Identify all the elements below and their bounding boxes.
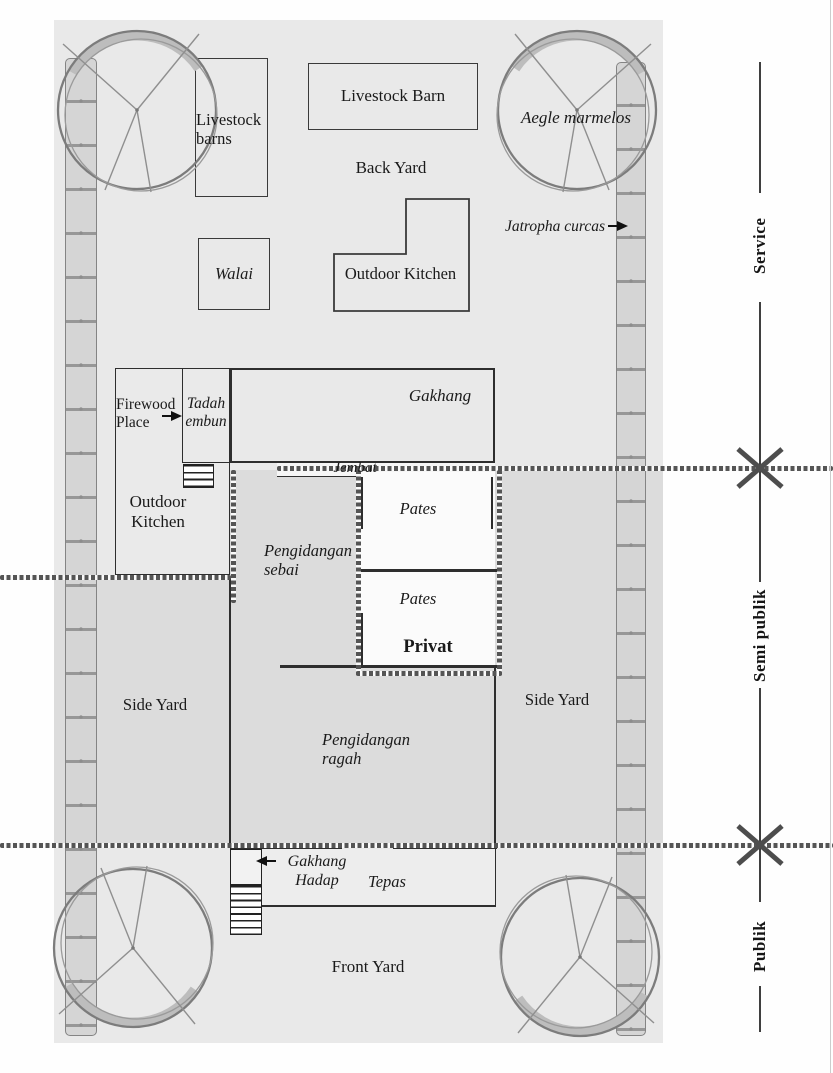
pates-divider-wall bbox=[357, 569, 497, 572]
zone-divider-x-icon bbox=[733, 822, 787, 868]
pengidangan-ragah-label: Pengidangan ragah bbox=[322, 730, 424, 769]
outdoor-kitchen-top-label: Outdoor Kitchen bbox=[333, 264, 468, 283]
side-yard-right-label: Side Yard bbox=[512, 690, 602, 709]
zone-axis-segment bbox=[759, 302, 761, 582]
aegle-marmelos-label: Aegle marmelos bbox=[495, 108, 657, 128]
pates-lower-label: Pates bbox=[383, 589, 453, 608]
zone-axis-segment bbox=[759, 62, 761, 193]
firewood-arrow-icon bbox=[162, 411, 182, 421]
walai-label: Walai bbox=[198, 264, 270, 283]
back-yard-label: Back Yard bbox=[330, 158, 452, 178]
zone-boundary-semipublic-public bbox=[0, 843, 833, 848]
zone-axis-segment bbox=[759, 688, 761, 902]
zone-axis-segment bbox=[759, 986, 761, 1032]
wall-stub-lower-left bbox=[361, 613, 363, 666]
pates-enclosure-bottom bbox=[356, 671, 502, 676]
house-left-wall bbox=[229, 578, 231, 848]
zone-label-public: Publik bbox=[744, 905, 776, 987]
wall-stub-upper-left bbox=[361, 477, 363, 529]
jembat-label: Jembat bbox=[320, 460, 390, 478]
outdoor-kitchen-top-building bbox=[333, 198, 470, 312]
page-edge-line bbox=[830, 0, 831, 1073]
zone-label-service: Service bbox=[744, 200, 776, 292]
house-left-open-wall bbox=[231, 470, 236, 603]
gakhang-hadap-label: Gakhang Hadap bbox=[280, 853, 354, 891]
zone-label-semi-public: Semi publik bbox=[744, 584, 776, 688]
livestock-barns-left-label: Livestock barns bbox=[196, 110, 272, 149]
pates-upper-label: Pates bbox=[383, 499, 453, 518]
tadah-embun-label: Tadah embun bbox=[183, 395, 229, 432]
outdoor-kitchen-left-label: Outdoor Kitchen bbox=[117, 492, 199, 532]
tree-icon bbox=[45, 860, 221, 1036]
tepas-label: Tepas bbox=[355, 872, 419, 891]
privat-label: Privat bbox=[393, 637, 463, 659]
site-plan-figure: Livestock barns Livestock Barn Back Yard… bbox=[0, 0, 833, 1073]
pengidangan-sebai-label: Pengidangan sebai bbox=[264, 541, 364, 580]
jatropha-curcas-label: Jatropha curcas bbox=[478, 218, 605, 236]
privat-bottom-wall bbox=[280, 665, 497, 668]
zone-divider-x-icon bbox=[733, 445, 787, 491]
side-yard-left-label: Side Yard bbox=[110, 695, 200, 714]
gakhang-room bbox=[230, 368, 495, 463]
pates-enclosure-right bbox=[497, 470, 502, 676]
stairs-entry bbox=[230, 885, 262, 935]
stairs-upper bbox=[183, 464, 214, 488]
zone-boundary-service-semipublic-left bbox=[0, 575, 231, 580]
front-yard-label: Front Yard bbox=[318, 957, 418, 977]
wall-stub-upper-right bbox=[491, 477, 493, 529]
pates-upper-room bbox=[359, 472, 495, 570]
livestock-barn-top-label: Livestock Barn bbox=[308, 86, 478, 106]
tree-icon bbox=[492, 869, 668, 1045]
gakhang-label: Gakhang bbox=[390, 386, 490, 406]
jatropha-arrow-icon bbox=[608, 221, 628, 231]
entry-landing bbox=[230, 849, 262, 885]
gakhang-hadap-arrow-icon bbox=[256, 856, 276, 866]
